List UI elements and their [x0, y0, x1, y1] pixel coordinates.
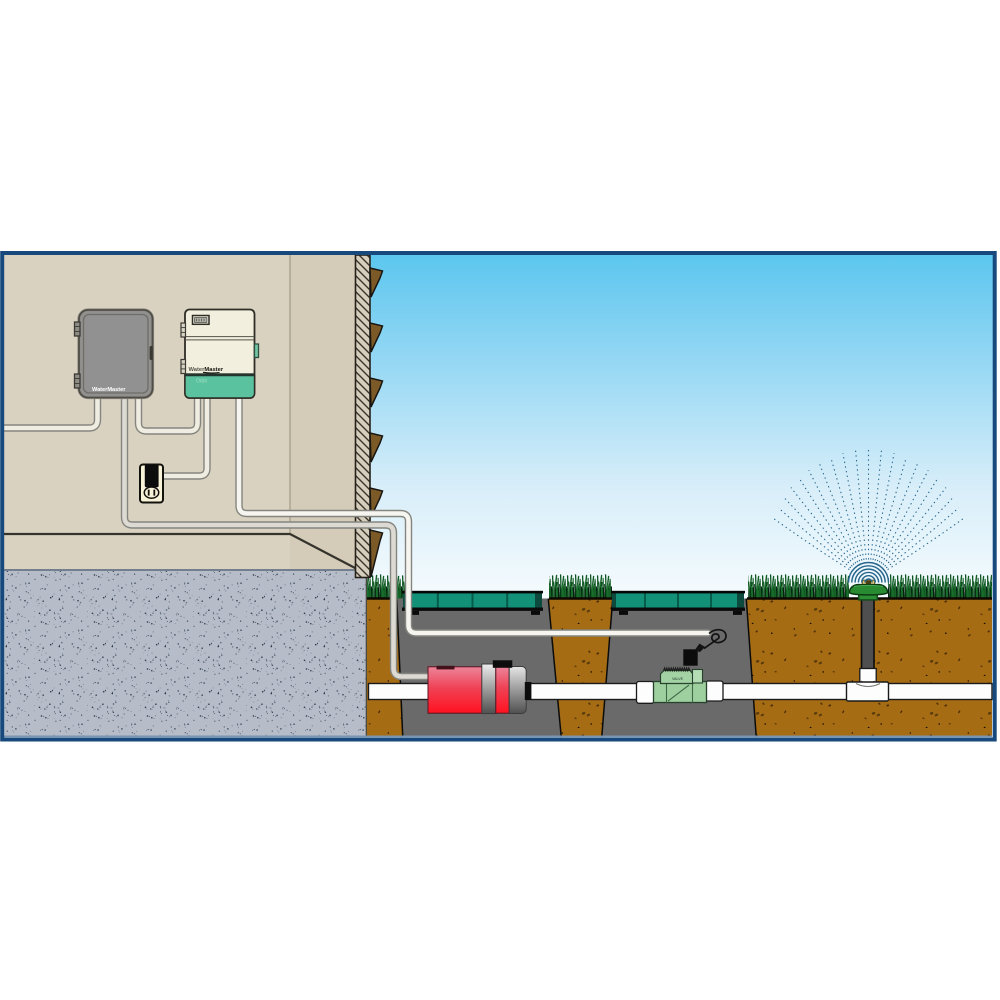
svg-text:Orbit: Orbit [196, 379, 207, 385]
svg-text:VALVE: VALVE [672, 677, 684, 681]
svg-text:WaterMaster: WaterMaster [92, 387, 126, 393]
